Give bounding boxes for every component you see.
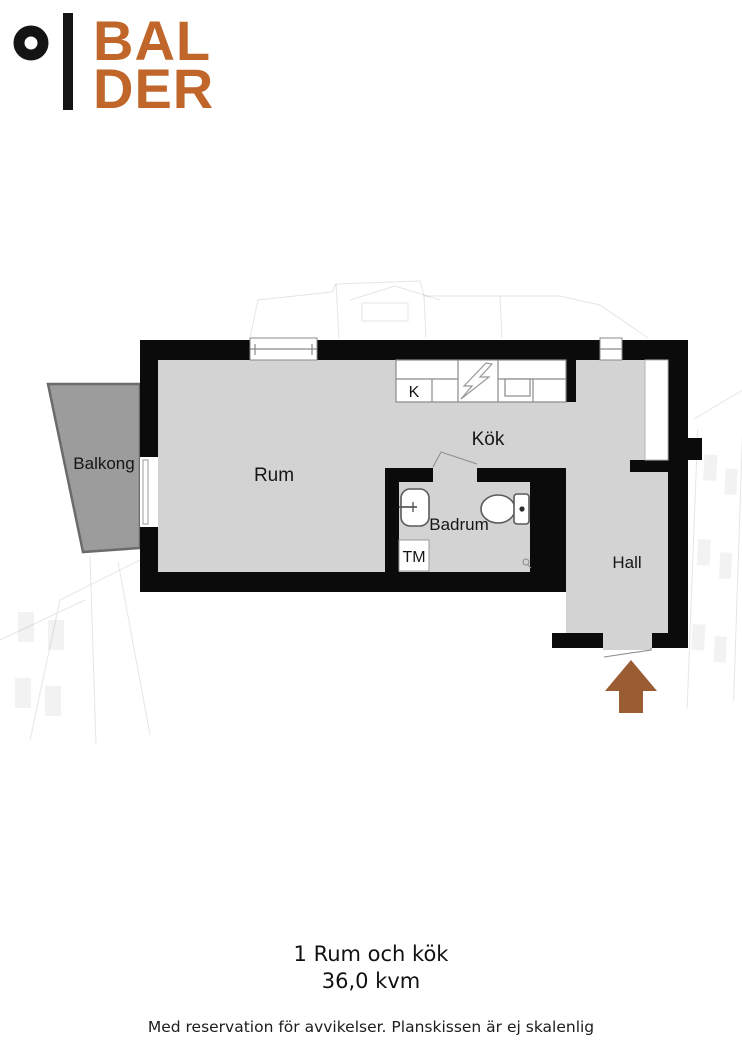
summary-title: 1 Rum och kök xyxy=(0,941,742,968)
balder-logo: BAL DER xyxy=(19,9,214,120)
entrance-floor xyxy=(603,633,652,650)
wall-left-upper xyxy=(140,340,158,457)
room-label-badrum: Badrum xyxy=(429,515,489,534)
kitchen-sink-icon xyxy=(505,379,530,396)
wall-hall-bottom-right xyxy=(652,633,688,648)
logo-ring-icon xyxy=(19,31,43,55)
room-label-rum: Rum xyxy=(254,465,294,486)
wall-right-stub xyxy=(688,438,702,460)
hall-cabinet xyxy=(645,360,668,460)
floorplan: K TM Balkong Rum Kök Badrum Hall xyxy=(48,338,702,713)
wall-bottom xyxy=(140,572,566,592)
apartment-summary: 1 Rum och kök 36,0 kvm xyxy=(0,941,742,995)
room-label-balkong: Balkong xyxy=(73,454,134,473)
wall-bathroom-top-left xyxy=(385,468,433,482)
wall-bathroom-top-right xyxy=(477,468,530,482)
summary-area: 36,0 kvm xyxy=(0,968,742,995)
wall-counter-stub xyxy=(566,360,576,402)
logo-bar xyxy=(63,13,73,110)
wall-bathroom-left xyxy=(385,468,399,572)
wall-right xyxy=(668,340,688,648)
wall-bathroom-right-block xyxy=(530,468,566,592)
washing-machine-label: TM xyxy=(402,549,425,566)
logo-text-line2: DER xyxy=(93,57,214,120)
room-label-hall: Hall xyxy=(612,553,641,572)
room-label-kok: Kök xyxy=(472,429,505,450)
wall-hall-top-stub xyxy=(630,460,668,472)
wall-hall-bottom-left xyxy=(552,633,603,648)
entrance-arrow-icon xyxy=(605,660,657,713)
floorplan-page: BAL DER xyxy=(0,0,742,1046)
footer-disclaimer: Med reservation för avvikelser. Planskis… xyxy=(0,1018,742,1036)
wall-left-lower xyxy=(140,527,158,592)
fridge-label: K xyxy=(409,384,420,401)
